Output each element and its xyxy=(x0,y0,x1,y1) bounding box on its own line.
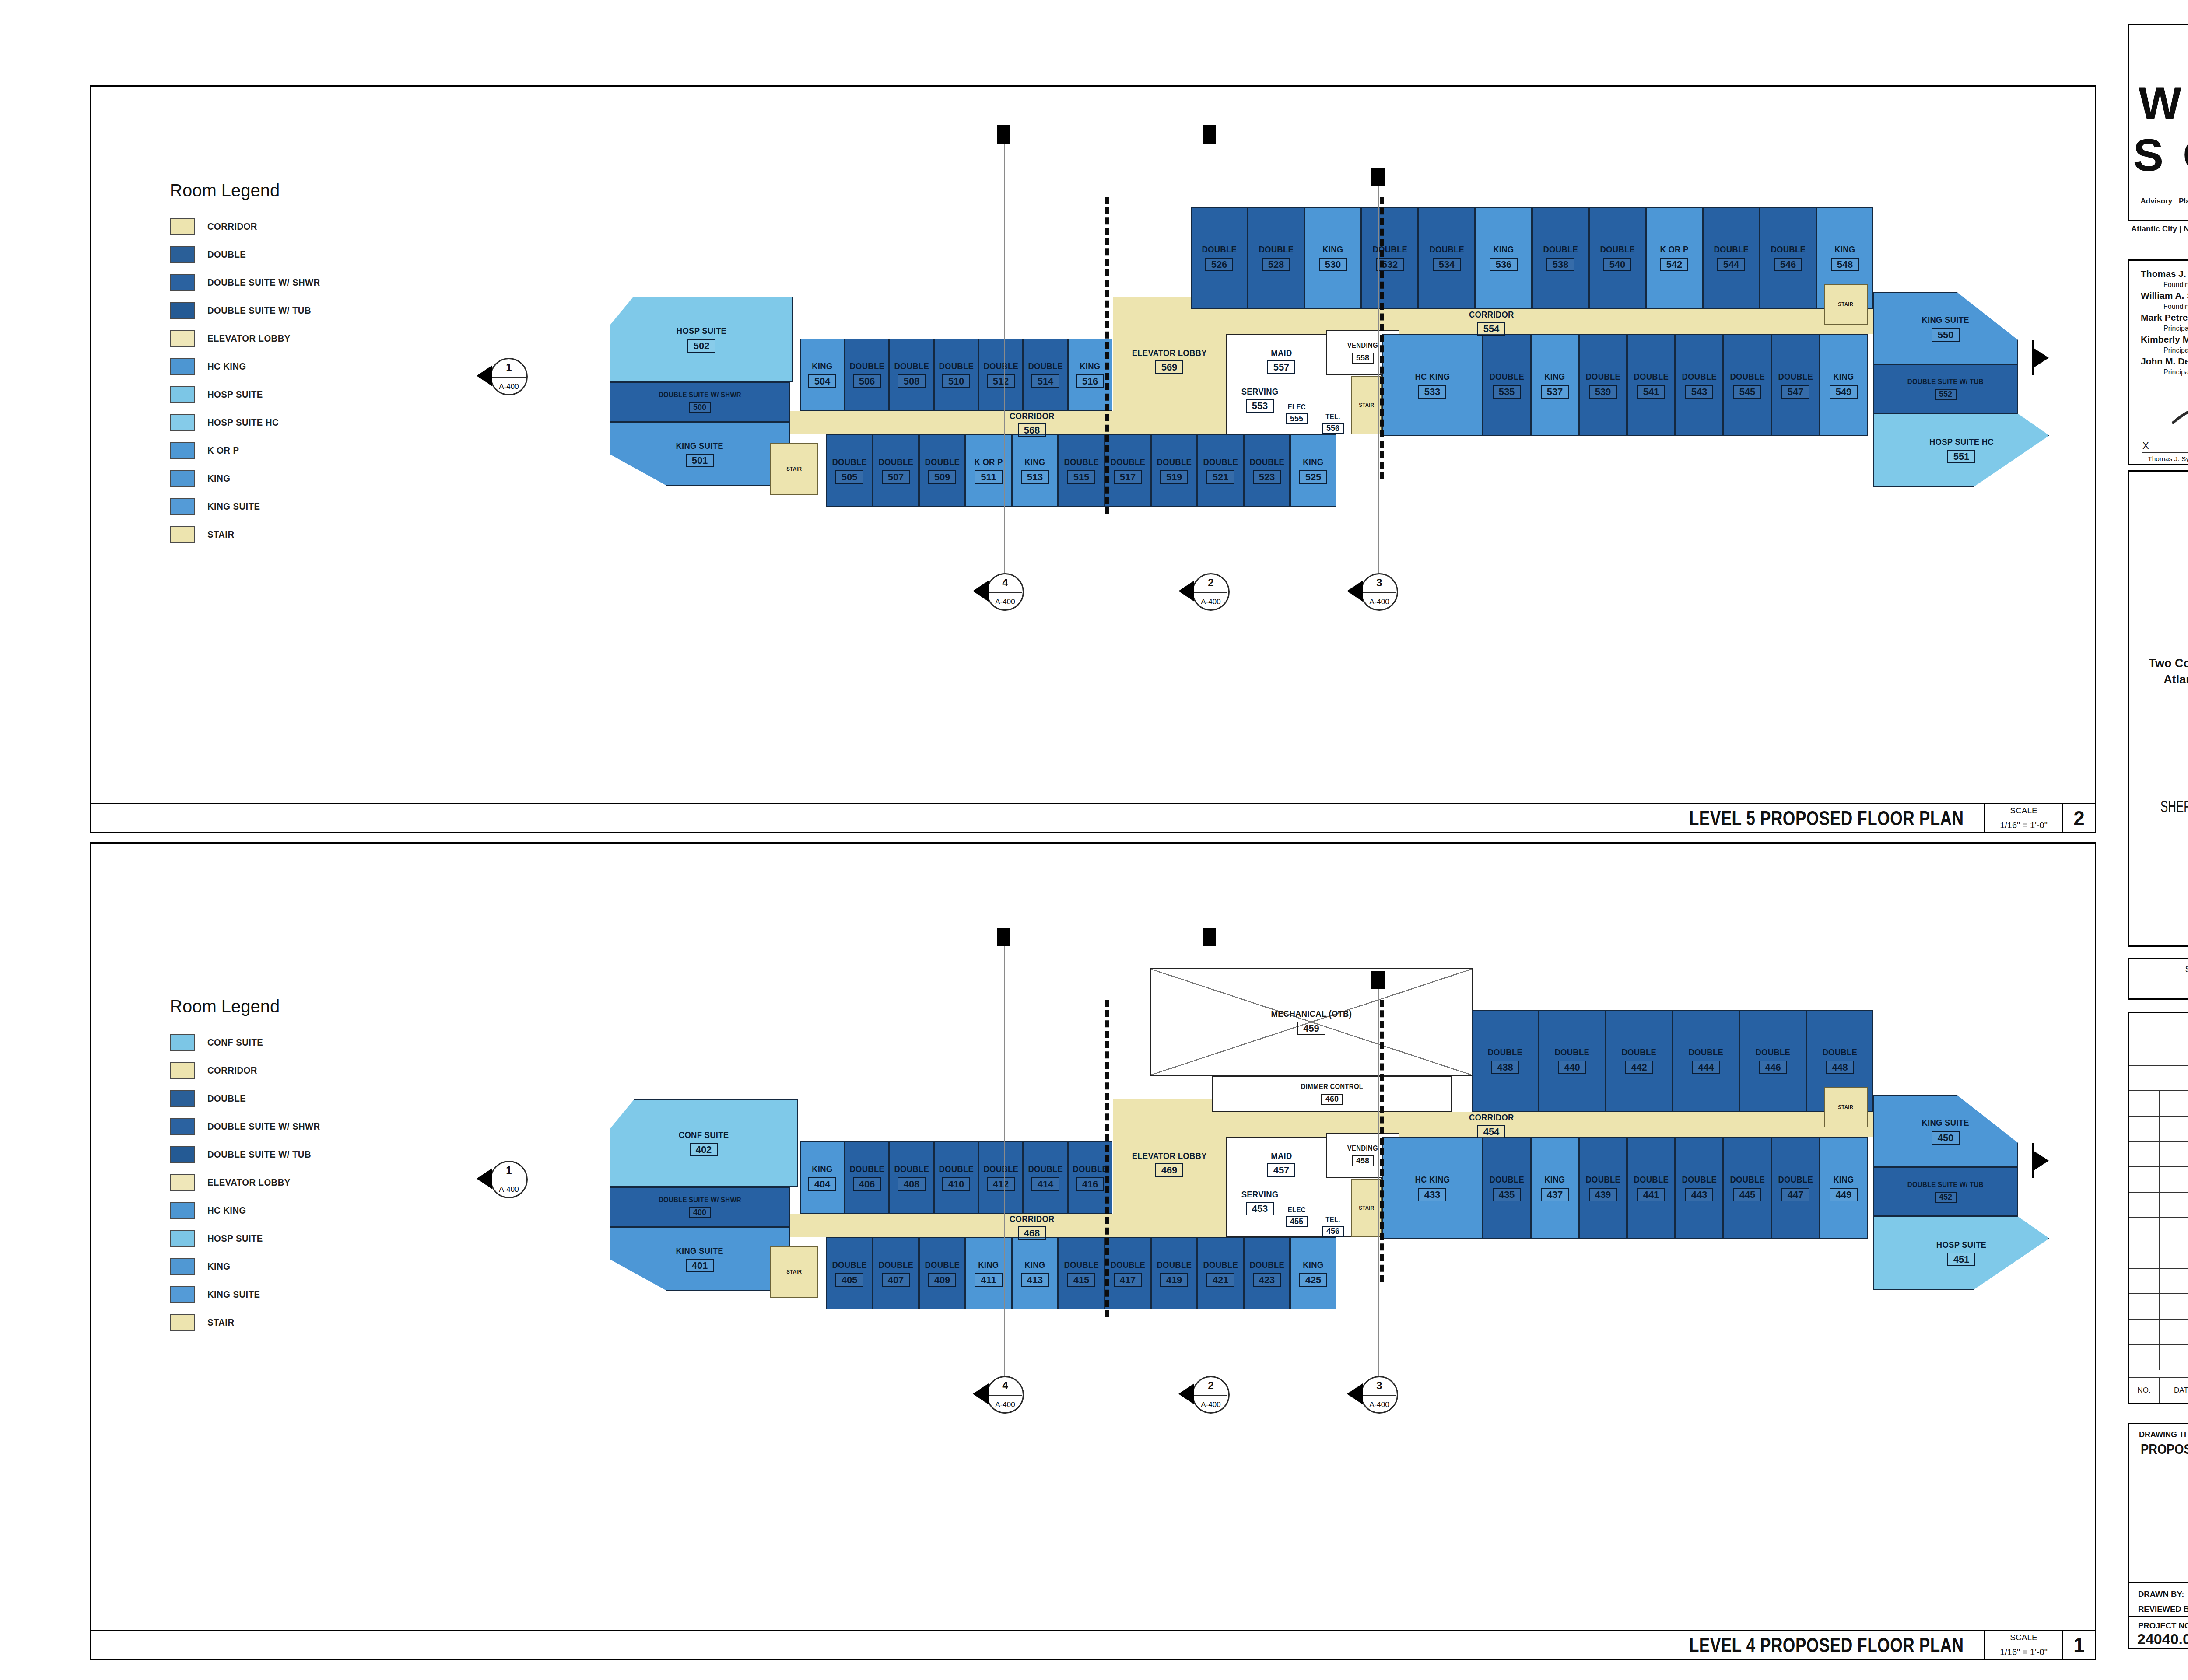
legend-swatch xyxy=(170,274,195,291)
plan-area xyxy=(1113,297,1226,434)
room-type-label: KING SUITE xyxy=(1922,1118,1969,1128)
room-type-label: DOUBLE xyxy=(983,361,1018,371)
legend-item: STAIR xyxy=(170,521,330,549)
legend-swatch xyxy=(170,302,195,319)
section-marker-sheet: A-400 xyxy=(988,1400,1023,1409)
room-type-label: DOUBLE xyxy=(1771,245,1806,255)
room-number: 538 xyxy=(1546,258,1575,271)
divider xyxy=(2129,1582,2188,1583)
drawing-title: PROPOSED FLOOR PLAN xyxy=(2141,1442,2188,1457)
room-number: 530 xyxy=(1319,258,1347,271)
room-type-label: DOUBLE xyxy=(1543,245,1578,255)
revision-empty-row xyxy=(2129,1116,2188,1142)
room-type-label: DOUBLE xyxy=(1778,1175,1813,1185)
room-type-label: HC KING xyxy=(1415,1175,1450,1185)
revision-empty-row xyxy=(2129,1192,2188,1218)
room-type-label: DOUBLE xyxy=(1682,1175,1717,1185)
view-title: LEVEL 4 PROPOSED FLOOR PLAN xyxy=(91,1631,1984,1659)
room-number: 437 xyxy=(1541,1188,1569,1201)
grid-tick xyxy=(1203,928,1216,946)
match-line-flag xyxy=(2034,1151,2049,1170)
legend-label: KING xyxy=(207,473,230,484)
section-marker-number: 1 xyxy=(491,361,526,374)
room-413: KING413 xyxy=(1012,1237,1058,1309)
legend-title: Room Legend xyxy=(170,181,330,200)
room-type-label: DOUBLE xyxy=(1064,457,1099,467)
room-type-label: DOUBLE SUITE W/ SHWR xyxy=(659,1196,741,1204)
room-number: 458 xyxy=(1352,1155,1374,1166)
room-type-label: DOUBLE xyxy=(1823,1047,1858,1057)
room-type-label: KING SUITE xyxy=(676,441,723,451)
section-marker-number: 2 xyxy=(1193,1379,1228,1392)
signature xyxy=(2167,381,2188,447)
room-type-label: DOUBLE SUITE W/ SHWR xyxy=(659,391,741,399)
level4-title-bar: LEVEL 4 PROPOSED FLOOR PLAN SCALE 1/16" … xyxy=(91,1630,2095,1659)
revision-empty-row xyxy=(2129,1319,2188,1345)
legend-item: ELEVATOR LOBBY xyxy=(170,1169,330,1197)
viewport-level4: CONF SUITE402DOUBLE SUITE W/ SHWR400KING… xyxy=(90,842,2096,1660)
revisions-col-no: NO. xyxy=(2129,1378,2160,1403)
drawing-title-box: DRAWING TITLE: PROPOSED FLOOR PLAN DRAWN… xyxy=(2128,1423,2188,1649)
room-551: HOSP SUITE HC551 xyxy=(1873,413,2049,487)
revision-col-divider xyxy=(2159,1243,2160,1269)
room-type-label: DOUBLE xyxy=(1489,372,1524,382)
room-460: DIMMER CONTROL460 xyxy=(1212,1076,1452,1112)
grid-tick xyxy=(1371,971,1385,989)
room-505: DOUBLE505 xyxy=(826,434,873,507)
room-number: 516 xyxy=(1076,374,1105,388)
room-546: DOUBLE546 xyxy=(1760,207,1816,309)
room-number: 550 xyxy=(1932,328,1960,342)
room-517: DOUBLE517 xyxy=(1105,434,1151,507)
revision-col-divider xyxy=(2159,1193,2160,1218)
submittal-box: SITE PLAN SUBMITTAL 10-17-2025 xyxy=(2128,958,2188,1000)
section-marker-sheet: A-400 xyxy=(988,598,1023,606)
room-number: 512 xyxy=(987,374,1015,388)
room-521: DOUBLE521 xyxy=(1197,434,1244,507)
room-number: 540 xyxy=(1603,258,1632,271)
legend-item: DOUBLE SUITE W/ TUB xyxy=(170,297,330,325)
room-number: 405 xyxy=(835,1273,864,1287)
level4-room-legend: Room Legend CONF SUITECORRIDORDOUBLEDOUB… xyxy=(170,997,330,1337)
room-number: 443 xyxy=(1685,1188,1714,1201)
revision-empty-row xyxy=(2129,1293,2188,1319)
signature-line xyxy=(2142,452,2188,453)
room-504: KING504 xyxy=(800,339,845,411)
license-line: Thomas J. Sykes - New Jersey License # 2… xyxy=(2147,455,2188,463)
legend-item: DOUBLE xyxy=(170,241,330,269)
legend-swatch xyxy=(170,526,195,543)
divider xyxy=(2129,1616,2188,1617)
legend-label: HOSP SUITE HC xyxy=(207,417,279,428)
room-number: 402 xyxy=(690,1143,718,1156)
view-scale: SCALE 1/16" = 1'-0" xyxy=(1984,804,2062,832)
room-number: 523 xyxy=(1253,470,1281,484)
room-533: HC KING533 xyxy=(1382,334,1483,436)
legend-item: KING SUITE xyxy=(170,1281,330,1309)
match-line xyxy=(1380,197,1384,479)
legend-label: K OR P xyxy=(207,445,239,456)
room-number: 549 xyxy=(1830,385,1858,399)
section-marker-1: 1A-400 xyxy=(490,358,528,395)
legend-swatch xyxy=(170,1314,195,1331)
room-451: HOSP SUITE451 xyxy=(1873,1216,2049,1290)
viewport-level5: HOSP SUITE502DOUBLE SUITE W/ SHWR500KING… xyxy=(90,85,2096,833)
scale-value: 1/16" = 1'-0" xyxy=(2000,1647,2048,1657)
room-441: DOUBLE441 xyxy=(1627,1137,1675,1239)
room-number: 404 xyxy=(808,1177,837,1191)
room-type-label: KING SUITE xyxy=(1922,315,1969,325)
project-name: SHERATON AC CONVERSION xyxy=(2129,798,2188,816)
room-507: DOUBLE507 xyxy=(873,434,919,507)
room-number: 544 xyxy=(1717,258,1746,271)
room-519: DOUBLE519 xyxy=(1151,434,1197,507)
legend-label: HC KING xyxy=(207,361,246,372)
section-marker-sheet: A-400 xyxy=(1193,1400,1228,1409)
room-405: DOUBLE405 xyxy=(826,1237,873,1309)
match-line xyxy=(1380,1000,1384,1282)
legend-swatch xyxy=(170,1230,195,1247)
principal-name: John M. DeRichie III, R.A., A.I.A., NCAR… xyxy=(2141,355,2188,367)
legend-swatch xyxy=(170,1090,195,1107)
grid-line xyxy=(1378,179,1379,591)
match-line xyxy=(1105,197,1109,514)
grid-line xyxy=(1210,941,1210,1393)
legend-swatch xyxy=(170,442,195,459)
legend-item: DOUBLE xyxy=(170,1085,330,1113)
legend-label: DOUBLE xyxy=(207,249,246,260)
room-type-label: DOUBLE xyxy=(832,1260,867,1270)
room-512: DOUBLE512 xyxy=(978,339,1023,411)
room-type-label: DOUBLE xyxy=(832,457,867,467)
section-marker-1: 1A-400 xyxy=(490,1161,528,1198)
room-number: 413 xyxy=(1021,1273,1049,1287)
legend-swatch xyxy=(170,1146,195,1163)
section-marker-3: 3A-400 xyxy=(1360,1376,1398,1414)
revision-col-divider xyxy=(2159,1116,2160,1142)
room-number: 406 xyxy=(853,1177,881,1191)
room-538: DOUBLE538 xyxy=(1532,207,1589,309)
grid-tick xyxy=(1203,125,1216,143)
project-box: Two Convention Boulevard, Atlantic City,… xyxy=(2128,470,2188,947)
room-number: 533 xyxy=(1418,385,1447,399)
principal-name: Kimberly McCarron, NCARB xyxy=(2141,333,2188,345)
legend-items: CONF SUITECORRIDORDOUBLEDOUBLE SUITE W/ … xyxy=(170,1029,330,1337)
principal-entry: William A. Salerno, A.I.A., P.P.Founding… xyxy=(2141,290,2188,311)
room-539: DOUBLE539 xyxy=(1579,334,1627,436)
room-438: DOUBLE438 xyxy=(1472,1010,1539,1112)
room-number: 558 xyxy=(1352,353,1374,364)
room-number: 412 xyxy=(987,1177,1015,1191)
room-number: 545 xyxy=(1733,385,1762,399)
section-marker-divider xyxy=(492,377,526,378)
room-number: 438 xyxy=(1491,1060,1519,1074)
level5-room-legend: Room Legend CORRIDORDOUBLEDOUBLE SUITE W… xyxy=(170,181,330,549)
legend-label: CONF SUITE xyxy=(207,1037,263,1048)
room-509: DOUBLE509 xyxy=(919,434,965,507)
grid-tick xyxy=(997,928,1010,946)
scale-label: SCALE xyxy=(2010,1633,2037,1642)
match-line xyxy=(1105,1000,1109,1317)
room-type-label: DOUBLE xyxy=(1622,1047,1657,1057)
legend-items: CORRIDORDOUBLEDOUBLE SUITE W/ SHWRDOUBLE… xyxy=(170,213,330,549)
principal-role: Founding Principal xyxy=(2141,280,2188,290)
room-number: 506 xyxy=(853,374,881,388)
room-401: KING SUITE401 xyxy=(610,1227,790,1291)
room-type-label: STAIR xyxy=(1359,1205,1375,1211)
room-type-label: DOUBLE xyxy=(1600,245,1635,255)
room-type-label: DOUBLE xyxy=(849,361,884,371)
room-544: DOUBLE544 xyxy=(1703,207,1760,309)
principal-entry: Mark Petrella, A.I.A.Principal xyxy=(2141,311,2188,333)
room-number: 543 xyxy=(1685,385,1714,399)
room-number: 501 xyxy=(686,454,714,467)
room-445: DOUBLE445 xyxy=(1723,1137,1771,1239)
room-407: DOUBLE407 xyxy=(873,1237,919,1309)
legend-label: DOUBLE SUITE W/ SHWR xyxy=(207,1121,320,1132)
room-number: 452 xyxy=(1935,1192,1957,1203)
room-type-label: DOUBLE xyxy=(894,361,929,371)
principal-role: Principal xyxy=(2141,323,2188,333)
plan-area xyxy=(1191,1112,1920,1137)
legend-label: CORRIDOR xyxy=(207,221,257,232)
room-number: 440 xyxy=(1558,1060,1586,1074)
room-423: DOUBLE423 xyxy=(1244,1237,1290,1309)
firm-logo-box: WΛTG SOSH Advisory Planning Architecture… xyxy=(2128,24,2188,221)
level4-floor-plan: CONF SUITE402DOUBLE SUITE W/ SHWR400KING… xyxy=(91,843,2095,1659)
room-stair: STAIR xyxy=(770,443,818,495)
reviewed-by: REVIEWED BY:Checker xyxy=(2138,1604,2188,1614)
revisions-header-row: NO. DATE DESCRIPTION xyxy=(2129,1377,2188,1403)
room-type-label: DOUBLE xyxy=(1634,372,1669,382)
drawn-by: DRAWN BY: Author xyxy=(2138,1589,2188,1599)
section-marker-divider xyxy=(989,1395,1022,1396)
room-439: DOUBLE439 xyxy=(1579,1137,1627,1239)
room-type-label: KING xyxy=(1024,457,1045,467)
room-415: DOUBLE415 xyxy=(1058,1237,1105,1309)
match-line-flag xyxy=(2034,348,2049,367)
legend-swatch xyxy=(170,386,195,403)
room-513: KING513 xyxy=(1012,434,1058,507)
print-timestamp: 10/17/2025 7:16:56 PM xyxy=(2144,1653,2188,1663)
room-type-label: DOUBLE xyxy=(1202,245,1237,255)
room-number: 439 xyxy=(1589,1188,1617,1201)
room-type-label: DOUBLE xyxy=(939,1164,974,1174)
revision-col-divider xyxy=(2159,1091,2160,1116)
room-number: 534 xyxy=(1433,258,1461,271)
room-type-label: DOUBLE xyxy=(1555,1047,1590,1057)
room-type-label: DOUBLE xyxy=(1073,1164,1108,1174)
legend-item: HOSP SUITE xyxy=(170,1225,330,1253)
legend-item: DOUBLE SUITE W/ SHWR xyxy=(170,1113,330,1141)
address-line1: Two Convention Boulevard, xyxy=(2129,655,2188,672)
section-marker-3: 3A-400 xyxy=(1360,573,1398,611)
room-number: 448 xyxy=(1826,1060,1854,1074)
room-type-label: CONF SUITE xyxy=(679,1130,729,1140)
legend-item: KING SUITE xyxy=(170,493,330,521)
revision-col-divider xyxy=(2159,1218,2160,1243)
revision-col-divider xyxy=(2159,1142,2160,1167)
room-number: 450 xyxy=(1932,1131,1960,1144)
logo-line1: WΛTG xyxy=(2129,77,2188,129)
legend-label: HC KING xyxy=(207,1205,246,1216)
room-547: DOUBLE547 xyxy=(1771,334,1820,436)
section-marker-number: 4 xyxy=(988,1379,1023,1392)
room-number: 500 xyxy=(689,402,711,413)
room-number: 517 xyxy=(1114,470,1142,484)
room-type-label: KING xyxy=(812,1164,832,1174)
room-406: DOUBLE406 xyxy=(845,1141,889,1214)
room-type-label: KING xyxy=(1303,1260,1323,1270)
plan-area xyxy=(1191,309,1920,334)
room-508: DOUBLE508 xyxy=(889,339,934,411)
legend-item: ELEVATOR LOBBY xyxy=(170,325,330,353)
section-marker-divider xyxy=(1194,592,1227,593)
room-type-label: DOUBLE xyxy=(925,1260,960,1270)
room-type-label: KING xyxy=(1833,372,1854,382)
legend-label: HOSP SUITE xyxy=(207,389,263,400)
room-number: 425 xyxy=(1299,1273,1328,1287)
legend-label: ELEVATOR LOBBY xyxy=(207,1177,291,1188)
principals-list: Thomas J. Sykes, A.I.A., P.P.Founding Pr… xyxy=(2141,268,2188,377)
room-number: 536 xyxy=(1490,258,1518,271)
room-type-label: DOUBLE xyxy=(1110,457,1145,467)
principals-box: Thomas J. Sykes, A.I.A., P.P.Founding Pr… xyxy=(2128,259,2188,465)
room-type-label: STAIR xyxy=(1359,402,1375,408)
grid-line xyxy=(1378,982,1379,1393)
room-type-label: HOSP SUITE xyxy=(677,326,726,336)
legend-label: KING SUITE xyxy=(207,1289,260,1300)
principal-role: Founding Principal xyxy=(2141,301,2188,311)
legend-item: DOUBLE SUITE W/ SHWR xyxy=(170,269,330,297)
section-marker-number: 2 xyxy=(1193,577,1228,589)
room-525: KING525 xyxy=(1290,434,1336,507)
room-number: 414 xyxy=(1031,1177,1060,1191)
room-type-label: DOUBLE xyxy=(878,1260,913,1270)
room-number: 451 xyxy=(1947,1253,1976,1266)
room-number: 537 xyxy=(1541,385,1569,399)
room-532: DOUBLE532 xyxy=(1361,207,1418,309)
room-number: 547 xyxy=(1781,385,1810,399)
room-type-label: DOUBLE xyxy=(1028,1164,1063,1174)
room-number: 514 xyxy=(1031,374,1060,388)
view-number: 1 xyxy=(2062,1631,2095,1659)
room-number: 435 xyxy=(1493,1188,1521,1201)
section-marker-4: 4A-400 xyxy=(986,573,1024,611)
legend-item: CORRIDOR xyxy=(170,213,330,241)
room-type-label: DOUBLE xyxy=(1157,457,1192,467)
section-marker-divider xyxy=(1363,592,1396,593)
legend-label: STAIR xyxy=(207,529,235,540)
room-type-label: DOUBLE xyxy=(1756,1047,1791,1057)
scale-label: SCALE xyxy=(2010,806,2037,815)
room-type-label: DOUBLE xyxy=(1203,457,1238,467)
room-type-label: DOUBLE xyxy=(1110,1260,1145,1270)
grid-tick xyxy=(1371,168,1385,186)
room-number: 511 xyxy=(975,470,1003,484)
grid-line xyxy=(1004,138,1005,591)
room-502: HOSP SUITE502 xyxy=(610,297,793,382)
room-400: DOUBLE SUITE W/ SHWR400 xyxy=(610,1187,790,1227)
room-501: KING SUITE501 xyxy=(610,422,790,486)
project-address: Two Convention Boulevard, Atlantic City,… xyxy=(2129,655,2188,688)
drawing-sheet: HOSP SUITE502DOUBLE SUITE W/ SHWR500KING… xyxy=(0,0,2188,1680)
room-type-label: KING xyxy=(1303,457,1323,467)
room-type-label: KING xyxy=(1493,245,1514,255)
room-number: 423 xyxy=(1253,1273,1281,1287)
room-stair: STAIR xyxy=(770,1246,818,1298)
room-type-label: HOSP SUITE HC xyxy=(1929,437,1994,447)
revision-empty-row xyxy=(2129,1065,2188,1091)
room-number: 507 xyxy=(882,470,910,484)
principal-role: Principal xyxy=(2141,367,2188,377)
room-number: 515 xyxy=(1067,470,1096,484)
room-type-label: DOUBLE xyxy=(1682,372,1717,382)
room-549: KING549 xyxy=(1820,334,1868,436)
room-535: DOUBLE535 xyxy=(1483,334,1531,436)
room-type-label: DOUBLE xyxy=(1488,1047,1523,1057)
room-number: 502 xyxy=(687,339,716,353)
view-number: 2 xyxy=(2062,804,2095,832)
section-marker-sheet: A-400 xyxy=(491,1185,526,1194)
room-type-label: KING xyxy=(1322,245,1343,255)
room-type-label: KING SUITE xyxy=(676,1246,723,1256)
submittal-title: SITE PLAN SUBMITTAL xyxy=(2129,964,2188,974)
room-542: K OR P542 xyxy=(1646,207,1703,309)
legend-item: HC KING xyxy=(170,353,330,381)
grid-tick xyxy=(997,125,1010,143)
room-type-label: DOUBLE xyxy=(1028,361,1063,371)
room-type-label: DOUBLE xyxy=(878,457,913,467)
room-type-label: DOUBLE SUITE W/ TUB xyxy=(1907,1181,1984,1189)
room-type-label: DOUBLE xyxy=(1064,1260,1099,1270)
principal-entry: Kimberly McCarron, NCARBPrincipal xyxy=(2141,333,2188,355)
room-528: DOUBLE528 xyxy=(1248,207,1304,309)
revisions-box: REVISIONS NO. DATE DESCRIPTION xyxy=(2128,1012,2188,1404)
room-437: KING437 xyxy=(1531,1137,1579,1239)
room-419: DOUBLE419 xyxy=(1151,1237,1197,1309)
room-type-label: DOUBLE xyxy=(983,1164,1018,1174)
legend-swatch xyxy=(170,1286,195,1303)
room-number: 401 xyxy=(686,1259,714,1272)
room-type-label: STAIR xyxy=(1838,301,1854,308)
room-type-label: KING xyxy=(1080,361,1100,371)
room-414: DOUBLE414 xyxy=(1023,1141,1068,1214)
room-number: 416 xyxy=(1076,1177,1105,1191)
room-type-label: STAIR xyxy=(1838,1104,1854,1110)
room-510: DOUBLE510 xyxy=(934,339,978,411)
room-type-label: KING xyxy=(1544,372,1565,382)
room-type-label: DOUBLE xyxy=(849,1164,884,1174)
room-440: DOUBLE440 xyxy=(1539,1010,1606,1112)
room-stair: STAIR xyxy=(1824,284,1868,325)
room-404: KING404 xyxy=(800,1141,845,1214)
room-number: 447 xyxy=(1781,1188,1810,1201)
room-425: KING425 xyxy=(1290,1237,1336,1309)
section-marker-divider xyxy=(1194,1395,1227,1396)
room-type-label: KING xyxy=(1024,1260,1045,1270)
principal-entry: John M. DeRichie III, R.A., A.I.A., NCAR… xyxy=(2141,355,2188,377)
legend-swatch xyxy=(170,330,195,347)
legend-label: KING xyxy=(207,1261,230,1272)
section-marker-divider xyxy=(989,592,1022,593)
room-type-label: DOUBLE xyxy=(1634,1175,1669,1185)
room-449: KING449 xyxy=(1820,1137,1868,1239)
revision-col-divider xyxy=(2159,1345,2160,1370)
room-number: 508 xyxy=(898,374,926,388)
legend-item: CONF SUITE xyxy=(170,1029,330,1057)
revision-empty-row xyxy=(2129,1090,2188,1116)
